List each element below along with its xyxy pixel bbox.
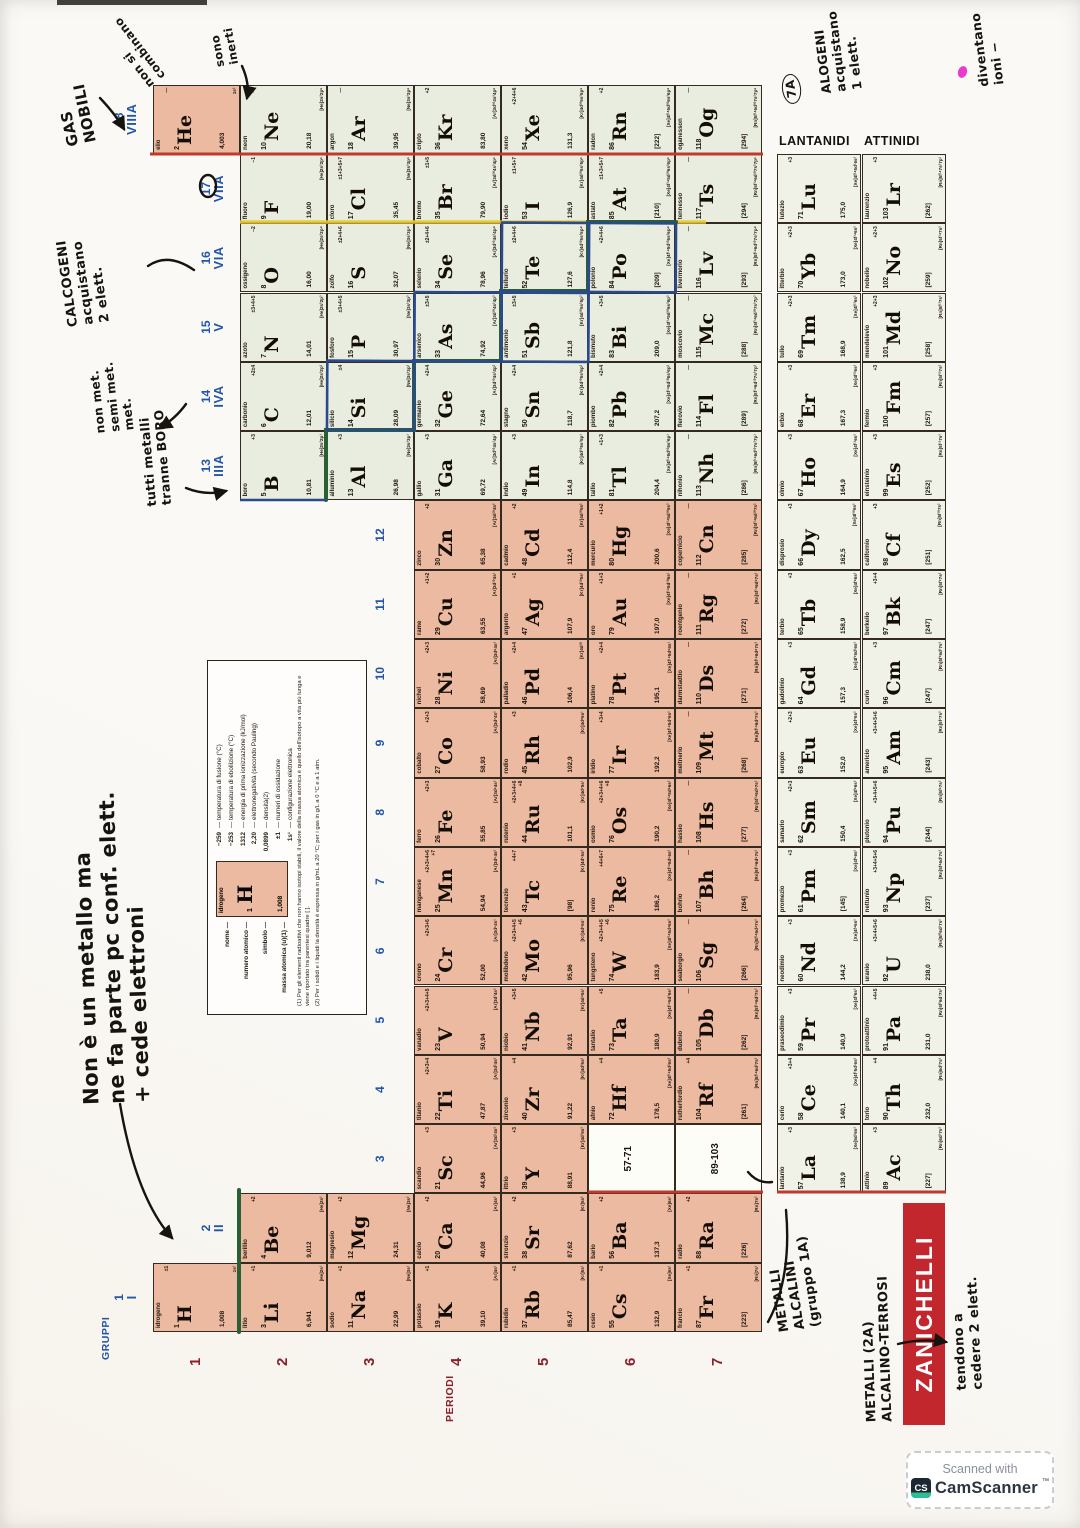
ink-arrow-iiia (186, 488, 226, 493)
camscanner-badge: Scanned with CS CamScanner ™ (906, 1451, 1054, 1509)
ink-arrow-idrogeno (120, 1104, 172, 1238)
scanned-page: idrogeno1H1,008±11s¹elio2He4,003—1s²liti… (0, 0, 1080, 1528)
periodic-table-sheet: idrogeno1H1,008±11s¹elio2He4,003—1s²liti… (0, 0, 1080, 1528)
pen-circle-group17 (200, 175, 216, 197)
hand-marks-overlay (0, 0, 1080, 1528)
scanned-with-text: Scanned with (942, 1462, 1017, 1476)
ink-brace-calcogeni (148, 260, 194, 270)
ink-arrow-semimet (160, 404, 186, 428)
scan-edge-artifact (57, 0, 207, 5)
ink-bracket-placeholder (748, 1172, 772, 1182)
trademark-symbol: ™ (1042, 1478, 1049, 1485)
camscanner-brand: CamScanner (935, 1479, 1038, 1498)
ink-arrow-sono-inerti (242, 66, 248, 98)
ink-arrow-tendono (898, 1340, 946, 1344)
ink-arrow-gas-nobili (100, 98, 124, 129)
ink-brace-alcalini (768, 1210, 787, 1322)
metalloid-navy-boxes (327, 222, 676, 432)
camscanner-icon: CS (911, 1478, 931, 1498)
